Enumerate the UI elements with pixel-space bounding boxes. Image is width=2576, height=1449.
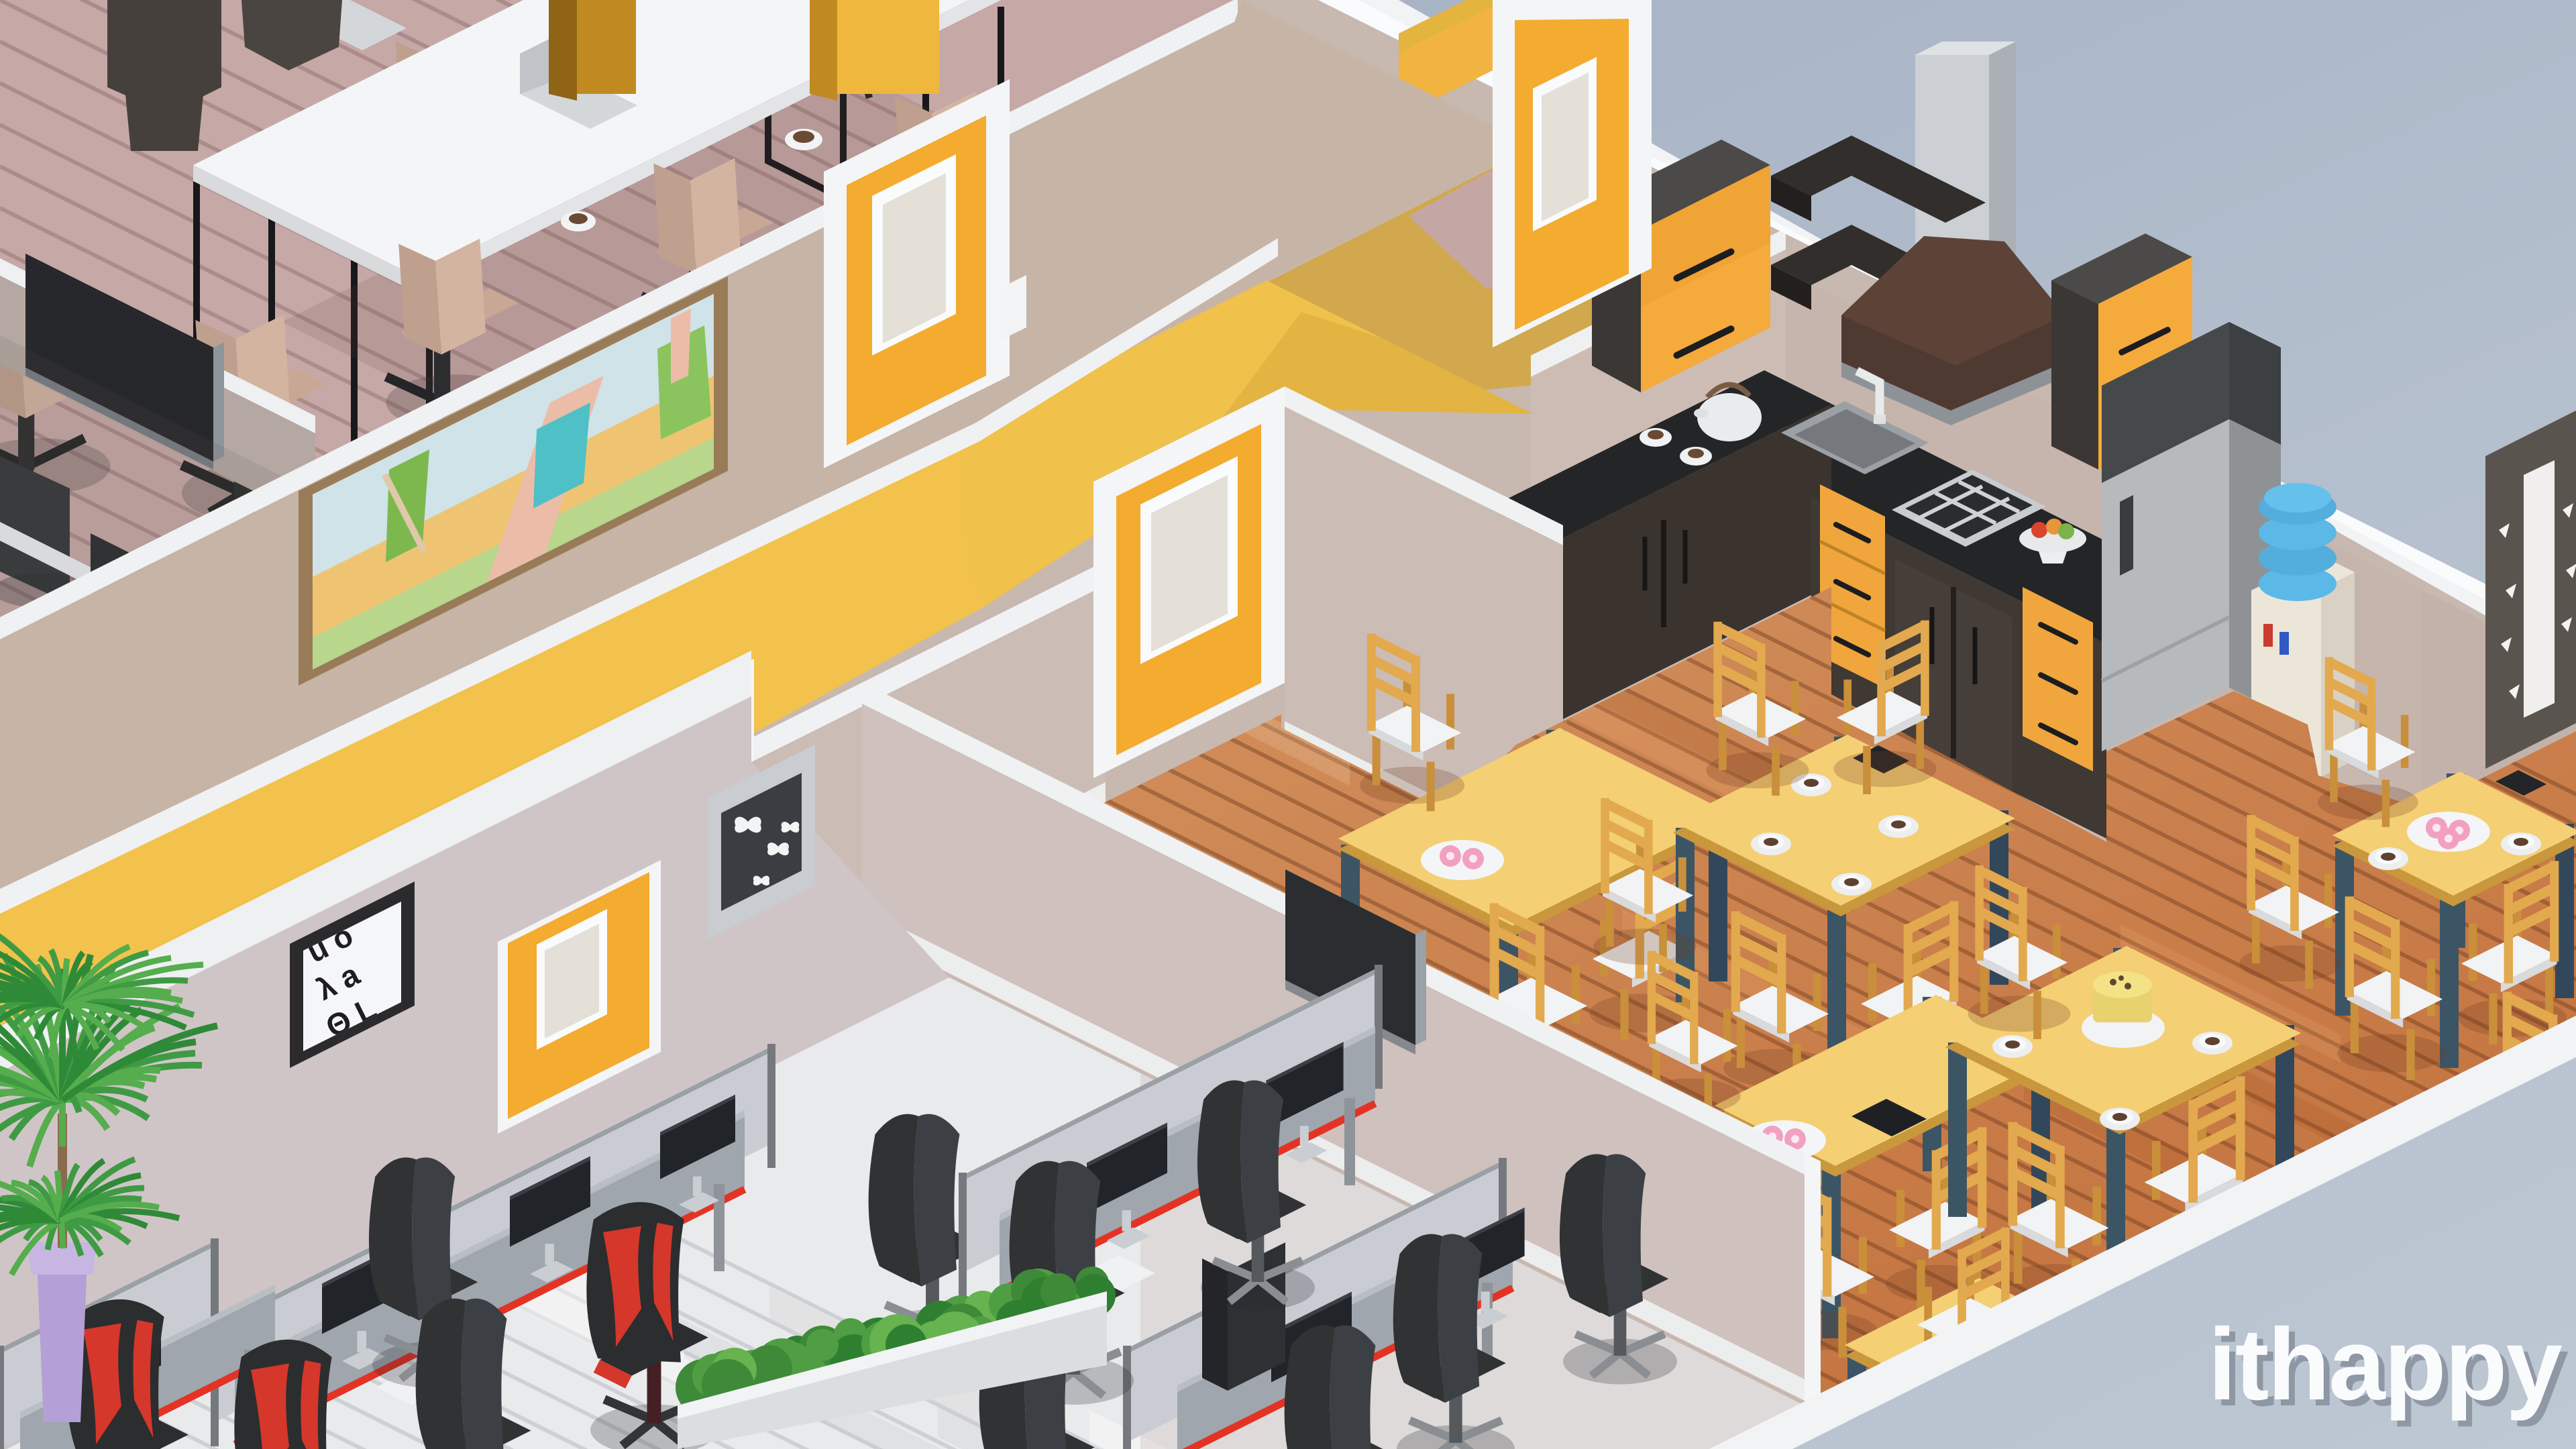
svg-text:ithappy: ithappy [2208,1307,2563,1421]
